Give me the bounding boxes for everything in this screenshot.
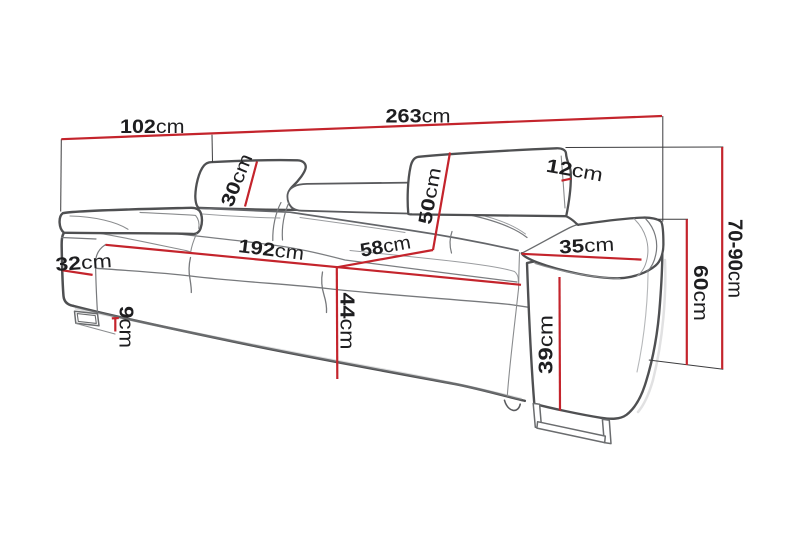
svg-text:35cm: 35cm [559, 235, 615, 259]
svg-text:39cm: 39cm [536, 315, 558, 374]
svg-text:60cm: 60cm [689, 265, 711, 321]
svg-text:32cm: 32cm [55, 251, 113, 276]
svg-text:9cm: 9cm [115, 306, 137, 348]
svg-text:102cm: 102cm [120, 117, 185, 138]
svg-text:263cm: 263cm [386, 107, 451, 128]
svg-text:44cm: 44cm [336, 293, 358, 350]
svg-text:70-90cm: 70-90cm [724, 219, 746, 298]
